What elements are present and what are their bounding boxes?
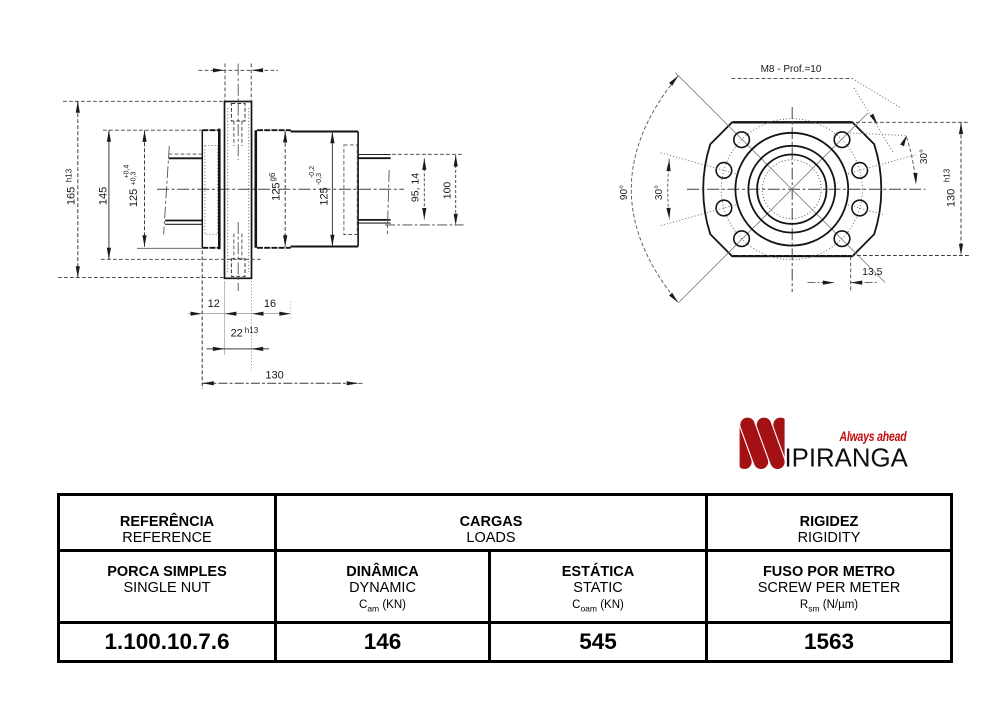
svg-text:M8 - Prof.=10: M8 - Prof.=10 xyxy=(761,64,822,75)
svg-text:130: 130 xyxy=(946,189,958,207)
svg-text:145: 145 xyxy=(98,187,110,205)
svg-text:h13: h13 xyxy=(65,168,74,182)
svg-text:-0,2: -0,2 xyxy=(309,166,316,178)
svg-text:100: 100 xyxy=(442,182,454,200)
svg-text:+0,4: +0,4 xyxy=(123,164,130,178)
svg-text:30°: 30° xyxy=(654,185,665,200)
svg-text:13,5: 13,5 xyxy=(862,266,883,278)
svg-text:h13: h13 xyxy=(245,326,259,335)
svg-text:IPIRANGA: IPIRANGA xyxy=(785,445,909,473)
svg-text:16: 16 xyxy=(264,298,276,310)
svg-text:165: 165 xyxy=(66,187,78,205)
svg-text:125: 125 xyxy=(271,183,283,201)
svg-text:h13: h13 xyxy=(943,168,952,182)
svg-text:22: 22 xyxy=(231,328,243,340)
svg-text:95, 14: 95, 14 xyxy=(410,173,422,202)
svg-text:30°: 30° xyxy=(919,149,930,164)
svg-text:g6: g6 xyxy=(268,172,277,181)
svg-text:125: 125 xyxy=(319,187,331,205)
svg-text:125: 125 xyxy=(128,189,140,207)
svg-text:Always ahead: Always ahead xyxy=(839,428,907,444)
svg-text:90°: 90° xyxy=(619,185,630,200)
svg-text:130: 130 xyxy=(265,370,283,382)
svg-text:12: 12 xyxy=(208,298,220,310)
svg-text:+0,3: +0,3 xyxy=(130,171,137,185)
svg-text:-0,3: -0,3 xyxy=(316,173,323,185)
